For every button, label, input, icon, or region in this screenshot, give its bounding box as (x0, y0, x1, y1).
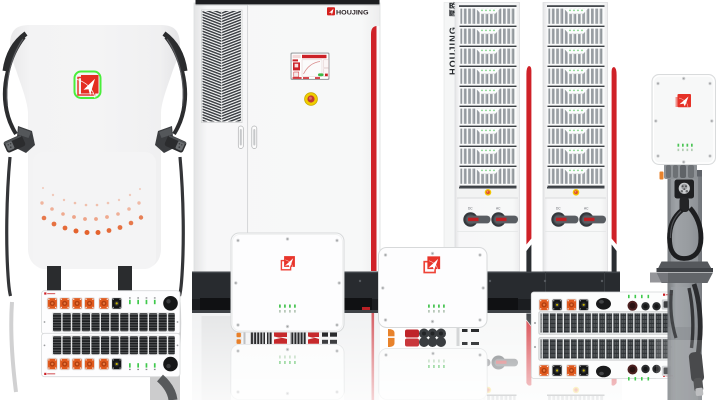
svg-text:HOUJING: HOUJING (336, 9, 369, 16)
